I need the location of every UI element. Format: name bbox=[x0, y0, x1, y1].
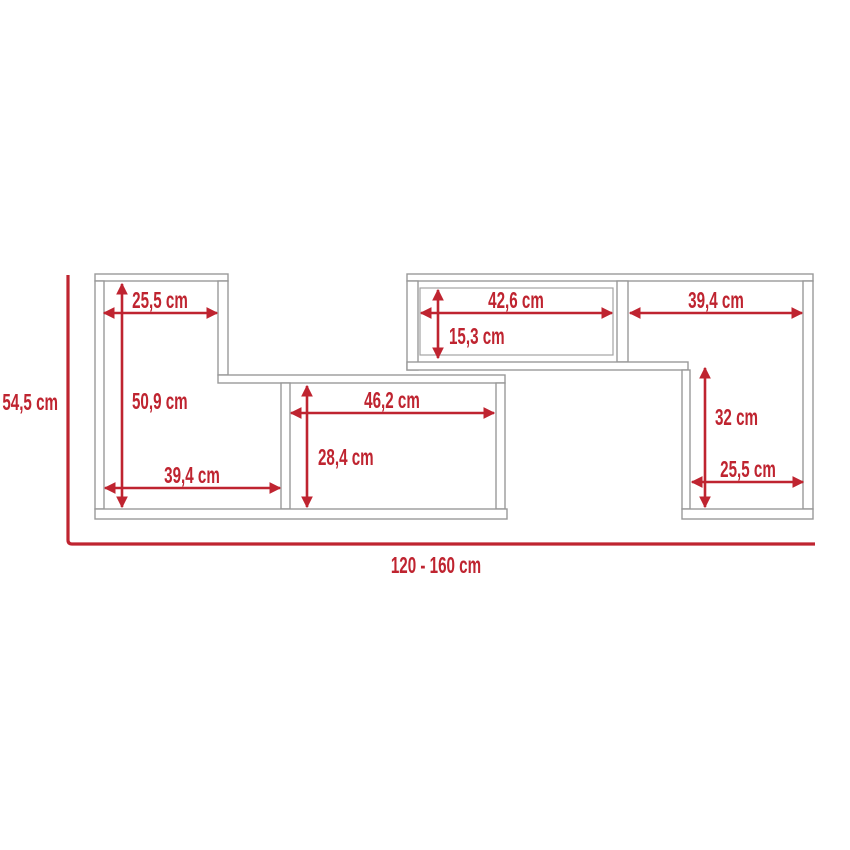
overall-width-label: 120 - 160 cm bbox=[391, 553, 481, 579]
panel-top-right-top bbox=[407, 274, 813, 281]
dim-right-height: 32 cm bbox=[705, 368, 758, 507]
panel-top-left-right bbox=[218, 281, 228, 375]
dim-label: 50,9 cm bbox=[132, 389, 188, 415]
dimension-diagram: 25,5 cm 50,9 cm 39,4 cm 46,2 cm 28,4 cm bbox=[0, 0, 850, 850]
dim-label: 15,3 cm bbox=[449, 324, 505, 350]
dim-label: 39,4 cm bbox=[164, 463, 220, 489]
dim-label: 39,4 cm bbox=[688, 288, 744, 314]
dim-center-width: 46,2 cm bbox=[291, 388, 494, 414]
panel-left-side bbox=[95, 281, 104, 509]
dim-label: 42,6 cm bbox=[488, 288, 544, 314]
dim-label: 46,2 cm bbox=[364, 388, 420, 414]
panel-top-right-left-end bbox=[407, 281, 418, 370]
panel-lower-right-left bbox=[682, 370, 690, 509]
panel-right-side bbox=[803, 281, 813, 509]
dim-top-right-width: 39,4 cm bbox=[630, 288, 802, 314]
dim-bottom-right-width: 25,5 cm bbox=[692, 457, 803, 483]
dim-bottom-left-width: 39,4 cm bbox=[105, 463, 280, 489]
overall-height-label: 54,5 cm bbox=[2, 390, 58, 416]
dim-top-center-width: 42,6 cm bbox=[421, 288, 612, 314]
dim-label: 32 cm bbox=[715, 405, 758, 431]
diagram-canvas: 25,5 cm 50,9 cm 39,4 cm 46,2 cm 28,4 cm bbox=[0, 0, 850, 850]
panel-middle-shelf bbox=[218, 375, 505, 383]
panel-bottom-right bbox=[682, 509, 813, 519]
panel-center-right-side bbox=[496, 383, 505, 509]
panel-top-right-divider bbox=[617, 281, 628, 362]
panel-bottom-left bbox=[95, 509, 507, 519]
panel-top-right-bottom bbox=[407, 362, 688, 370]
panel-center-left-divider bbox=[281, 383, 290, 509]
dim-label: 25,5 cm bbox=[132, 288, 188, 314]
dim-label: 25,5 cm bbox=[720, 457, 776, 483]
panel-top-left-top bbox=[95, 274, 228, 281]
dim-label: 28,4 cm bbox=[318, 445, 374, 471]
